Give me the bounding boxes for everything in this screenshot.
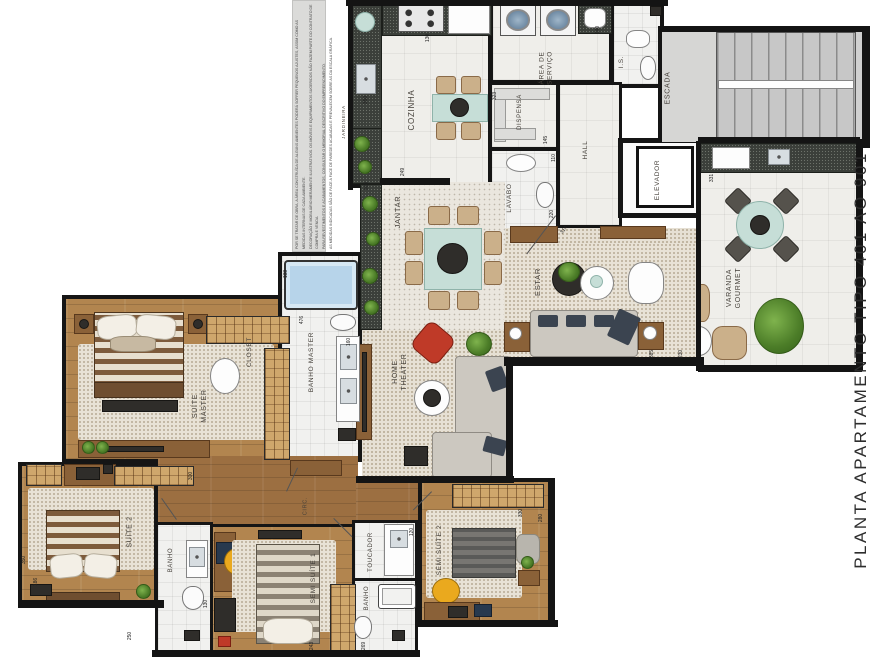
disclaimer-strip: POR SE TRATAR DE OBRA, A ÁREA CONSTRUÍDA… — [292, 0, 326, 252]
label-semi-suite-1: SEMI SUÍTE 1 — [310, 553, 318, 604]
dimension-label: 240 — [595, 26, 601, 34]
ss2-laptop — [448, 606, 468, 618]
s2-pillow — [49, 552, 84, 579]
stair-handrail — [718, 80, 854, 89]
dimension-label: 323 — [492, 92, 498, 100]
lamp — [79, 319, 89, 329]
varanda-plant — [754, 298, 804, 354]
dimension-label: 350 — [363, 96, 369, 104]
dining-chair — [405, 231, 423, 255]
bs-toilet — [354, 616, 372, 639]
wall-segment — [696, 141, 701, 371]
wall-segment — [380, 178, 450, 185]
dimension-label: 350 — [21, 556, 27, 564]
pouf — [210, 358, 240, 394]
label-elevador: ELEVADOR — [654, 160, 662, 201]
dimension-label: 130 — [203, 600, 209, 608]
dimension-label: 385 — [649, 350, 655, 358]
dimension-label: 145 — [543, 136, 549, 144]
table-lamp — [509, 327, 522, 340]
ht-side-table — [404, 446, 428, 466]
ht-chaise — [432, 432, 492, 478]
dimension-label: 476 — [299, 316, 305, 324]
label-closet: CLOSET — [246, 337, 254, 367]
dimension-label: 220 — [549, 210, 555, 218]
planter-plant — [366, 232, 380, 246]
dimension-label: 130 — [425, 34, 431, 42]
label-jantar: JANTAR — [393, 196, 403, 229]
dimension-label: 230 — [678, 350, 684, 358]
master-blanket — [94, 382, 184, 398]
varanda-table-center — [750, 215, 770, 235]
tv-screen — [362, 352, 367, 432]
kitchen-chair — [461, 122, 481, 140]
wall-segment — [658, 26, 870, 32]
wall-segment — [506, 357, 513, 483]
planter-plant — [362, 196, 378, 212]
bathtub — [284, 260, 358, 310]
label-banho-semi: BANHO — [364, 586, 372, 611]
bs-shower-head — [392, 630, 405, 641]
plan-title: PLANTA APARTAMENTO TIPO 401 AO 901 — [851, 151, 871, 569]
lavabo-toilet — [536, 182, 554, 208]
label-varanda-gourmet: VARANDA GOURMET — [725, 268, 743, 309]
bm-shower-head — [338, 428, 356, 441]
label-suite-2: SUÍTE 2 — [125, 516, 134, 547]
kitchen-chair — [436, 122, 456, 140]
dimension-label: 269 — [361, 642, 367, 650]
label-suite-master: SUÍTE MASTER — [191, 389, 209, 422]
console — [600, 226, 666, 239]
dimension-label: 330 — [518, 509, 524, 517]
ss2-wardrobe — [452, 484, 544, 508]
kitchen-chair — [436, 76, 456, 94]
bm-toilet — [330, 314, 356, 331]
planter-plant — [362, 268, 378, 284]
s2-wardrobe — [26, 464, 62, 486]
wall-segment — [346, 0, 668, 6]
grill — [712, 147, 750, 169]
wall-segment — [698, 365, 862, 372]
label-is: I.S. — [618, 56, 626, 69]
dining-chair — [428, 291, 450, 310]
ss1-wardrobe — [330, 584, 356, 652]
ss1-dresser — [214, 598, 236, 632]
kitchen-chair — [461, 76, 481, 94]
dining-chair — [428, 206, 450, 225]
planter-plant — [364, 300, 379, 315]
s2-plant — [136, 584, 151, 599]
elevator-cab — [636, 146, 694, 208]
label-banho-master: BANHO MASTER — [308, 332, 316, 392]
bs-tub — [378, 584, 416, 609]
sofa-cushion — [566, 315, 586, 327]
dining-chair — [484, 261, 502, 285]
ss2-chair — [432, 578, 460, 604]
pantry-shelf — [494, 128, 536, 140]
label-home-theater: HOME THEATER — [391, 353, 409, 390]
b2-sink — [189, 547, 205, 567]
lounge-chair — [712, 326, 747, 360]
is-toilet — [640, 56, 656, 80]
dining-chair — [484, 231, 502, 255]
dimension-label: 250 — [127, 632, 133, 640]
dresser-plant — [96, 441, 109, 454]
coffee-plant — [558, 262, 580, 282]
dimension-label: 900 — [364, 182, 370, 190]
label-banho-suite-2: BANHO — [168, 548, 176, 573]
toucador-sink — [390, 530, 408, 548]
closet-wardrobe — [264, 348, 290, 460]
b2-toilet — [182, 586, 204, 610]
lamp — [193, 319, 203, 329]
master-pillow — [110, 336, 156, 352]
s2-pillow — [83, 552, 118, 579]
label-estar: ESTAR — [533, 268, 543, 296]
floor-plan: POR SE TRATAR DE OBRA, A ÁREA CONSTRUÍDA… — [0, 0, 891, 672]
wall-segment — [862, 26, 870, 148]
wall-segment — [418, 620, 558, 627]
b2-shower-head — [184, 630, 200, 641]
label-lavabo: LAVABO — [506, 183, 514, 212]
kitchen-centerpiece — [450, 98, 469, 117]
ss2-bed — [452, 528, 516, 578]
decor-bowl — [355, 12, 375, 32]
wall-segment — [548, 478, 555, 627]
s2-wardrobe — [114, 466, 194, 486]
dining-chair — [405, 261, 423, 285]
ss1-decor — [218, 636, 231, 647]
dimension-label: 160 — [346, 338, 352, 346]
label-dispensa: DISPENSA — [517, 94, 525, 130]
wall-segment — [698, 137, 860, 143]
wall-segment — [348, 0, 353, 190]
dimension-label: 243 — [309, 642, 315, 650]
is-sink — [626, 30, 650, 48]
dimension-label: 120 — [409, 528, 415, 536]
disclaimer-text: POR SE TRATAR DE OBRA, A ÁREA CONSTRUÍDA… — [294, 3, 324, 249]
label-circ: CIRC. — [302, 497, 309, 515]
bm-sink — [340, 378, 357, 404]
ss1-bench — [258, 530, 302, 539]
label-toucador: TOUCADOR — [368, 532, 376, 572]
planter-plant — [354, 136, 370, 152]
ss2-plant — [521, 556, 534, 569]
wall-segment — [18, 600, 164, 608]
label-area-de-servico: ÁREA DE SERVIÇO — [539, 51, 556, 85]
dimension-label: 331 — [709, 174, 715, 182]
dining-centerpiece — [437, 243, 468, 274]
ht-coffee-inner — [423, 389, 441, 407]
sideboard — [510, 226, 558, 243]
dimension-label: 280 — [538, 514, 544, 522]
label-cozinha: COZINHA — [407, 90, 417, 131]
wall-segment — [152, 650, 420, 657]
dimension-label: 186 — [33, 578, 39, 586]
lavabo-sink — [506, 154, 536, 172]
dimension-label: 300 — [188, 472, 194, 480]
ss2-books — [474, 604, 492, 617]
kitchen-cabinet — [448, 2, 490, 34]
label-semi-suite-2: SEMI SUÍTE 2 — [436, 525, 444, 576]
ht-plant — [466, 332, 492, 356]
dining-chair — [457, 291, 479, 310]
is-shower-head — [650, 6, 662, 16]
dimension-label: 133 — [283, 270, 289, 278]
planter-plant — [358, 160, 372, 174]
dining-chair — [457, 206, 479, 225]
sofa-cushion — [538, 315, 558, 327]
ss2-nightstand — [518, 570, 540, 586]
label-hall: HALL — [582, 140, 590, 159]
master-bench — [102, 400, 178, 412]
dimension-label: 249 — [400, 168, 406, 176]
master-tv — [106, 446, 164, 452]
label-escada: ESCADA — [663, 72, 672, 105]
dresser-plant — [82, 441, 95, 454]
varanda-sink — [768, 149, 790, 165]
lounge-chair-white — [628, 262, 664, 304]
bm-sink — [340, 344, 357, 370]
washer — [540, 4, 576, 36]
ss1-pillow — [263, 618, 313, 644]
wall-segment — [504, 357, 704, 366]
s2-speaker — [103, 464, 113, 474]
dimension-label: 110 — [551, 154, 557, 162]
table-decor — [643, 326, 657, 340]
label-jardineira: JARDINEIRA — [341, 105, 347, 139]
washer — [500, 4, 536, 36]
coffee-decor — [590, 275, 603, 288]
s2-tv — [76, 467, 100, 480]
kitchen-sink — [356, 64, 376, 94]
wall-segment — [356, 476, 514, 483]
cooktop — [398, 4, 444, 32]
